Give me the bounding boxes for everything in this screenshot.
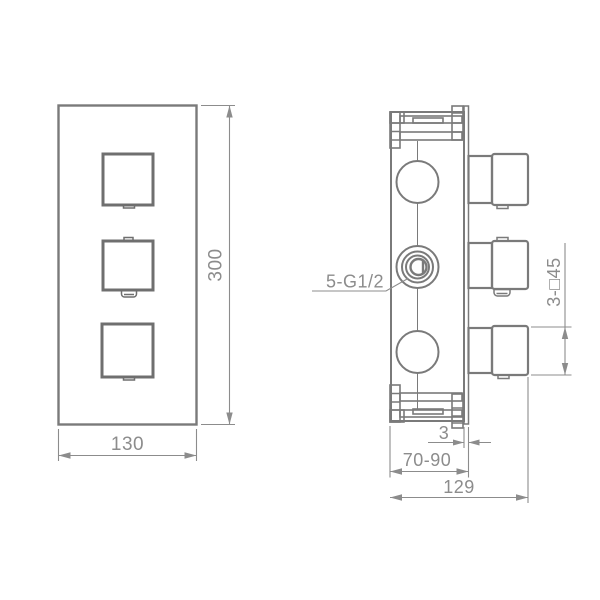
side-handle-3 (469, 326, 529, 379)
handle-base (469, 156, 493, 203)
ports (397, 161, 439, 373)
knob-square (103, 241, 153, 290)
front-knobs (102, 154, 153, 380)
handle-knob (492, 154, 528, 205)
dimension-labels: 130 300 3 70-90 129 3-□45 5-G1/2 (111, 248, 564, 497)
arrow (457, 468, 469, 474)
front-view (59, 106, 197, 425)
arrow (226, 106, 232, 118)
arrow (562, 327, 568, 339)
ports-label: 5-G1/2 (326, 272, 384, 292)
arrow (59, 452, 71, 458)
side-handle-1 (469, 154, 529, 209)
arrow (390, 468, 402, 474)
dim-depth-range-label: 70-90 (403, 450, 452, 470)
arrow (516, 494, 528, 500)
knob-square (102, 324, 153, 377)
dim-handle-size-label: 3-□45 (544, 257, 564, 306)
front-knob-2 (103, 238, 153, 298)
bracket-cap (390, 112, 404, 123)
handle-base (469, 328, 493, 373)
dim-height-label: 300 (206, 248, 227, 281)
front-knob-1 (103, 154, 153, 208)
arrow (453, 440, 464, 446)
handle-notch-top (497, 238, 508, 242)
side-handle-2 (469, 238, 529, 297)
dim-width-label: 130 (111, 434, 144, 455)
knob-square (103, 154, 153, 205)
dim-total-depth-label: 129 (443, 477, 475, 497)
handle-notch (498, 375, 509, 379)
arrow (226, 413, 232, 425)
handle-knob (492, 326, 528, 375)
front-knob-3 (102, 324, 153, 380)
handle-knob (492, 241, 528, 289)
side-handles (469, 154, 529, 379)
knob-notch-top (124, 238, 133, 242)
dim-plate-thickness-label: 3 (439, 423, 450, 443)
handle-notch (497, 205, 508, 209)
port-bottom (397, 331, 439, 373)
side-view (390, 106, 528, 428)
arrow (185, 452, 197, 458)
technical-drawing: 130 300 3 70-90 129 3-□45 5-G1/2 (0, 0, 600, 600)
arrow (562, 363, 568, 375)
handle-base (469, 243, 493, 288)
bracket-bar (413, 118, 443, 123)
technical-drawing-page: 130 300 3 70-90 129 3-□45 5-G1/2 (0, 0, 600, 600)
arrow (390, 494, 402, 500)
port-top (397, 161, 439, 203)
arrow (469, 440, 480, 446)
